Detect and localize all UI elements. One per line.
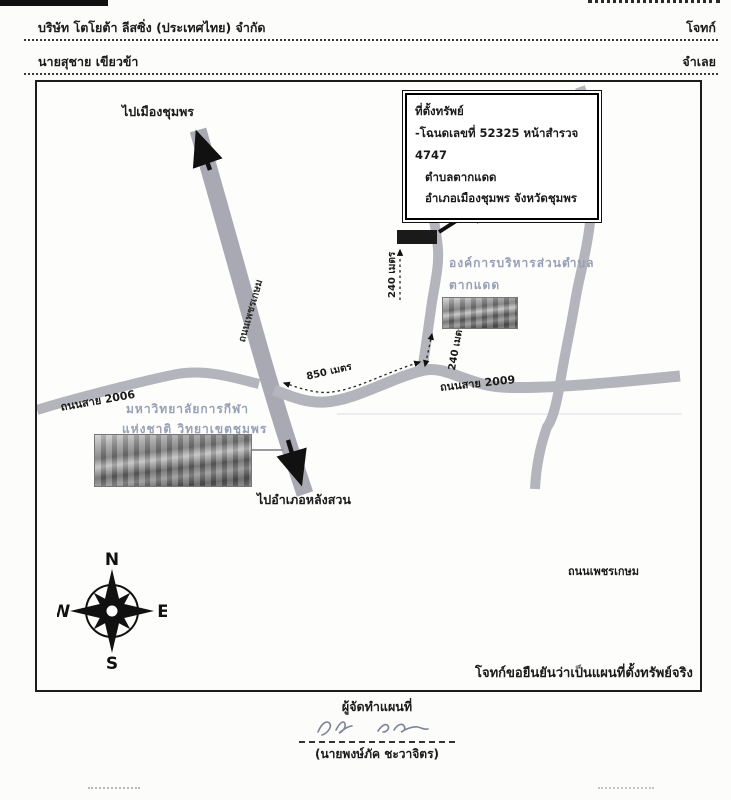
- compass-w: W: [57, 602, 71, 622]
- sao-office-photo: [442, 297, 518, 329]
- label-sao-line2: ตากแดด: [449, 276, 500, 295]
- plaintiff-role: โจทก์: [686, 18, 718, 38]
- plaintiff-line: บริษัท โตโยต้า ลีสซิ่ง (ประเทศไทย) จำกัด…: [24, 18, 718, 41]
- info-district-province: อำเภอเมืองชุมพร จังหวัดชุมพร: [415, 188, 589, 210]
- scan-artifact-bar: [0, 0, 108, 6]
- compass-rose: N S W E: [57, 550, 167, 670]
- compass-n: N: [105, 550, 119, 570]
- scan-artifact-dots-left: [88, 787, 140, 789]
- info-deed-line: -โฉนดเลขที่ 52325 หน้าสำรวจ 4747: [415, 123, 589, 167]
- scan-artifact-dots-right: [598, 787, 654, 789]
- defendant-role: จำเลย: [682, 52, 718, 72]
- preparer-name: (นายพงษ์ภัค ชะวาจิตร): [282, 745, 472, 764]
- label-phetkasem-text: ถนนเพชรเกษม: [568, 562, 639, 580]
- label-to-chumphon: ไปเมืองชุมพร: [122, 102, 194, 122]
- property-info-box: ที่ตั้งทรัพย์ -โฉนดเลขที่ 52325 หน้าสำรว…: [402, 90, 602, 223]
- label-university-line1: มหาวิทยาลัยการกีฬา: [126, 400, 249, 419]
- signature-line: [299, 741, 455, 743]
- confirmation-statement: โจทก์ขอยืนยันว่าเป็นแผนที่ตั้งทรัพย์จริง: [475, 662, 693, 683]
- label-to-langsuan: ไปอำเภอหลังสวน: [257, 490, 351, 510]
- label-distance-240-a: 240 เมตร: [385, 252, 400, 298]
- preparer-signature: [312, 714, 442, 744]
- label-sao-line1: องค์การบริหารส่วนตำบล: [449, 254, 594, 273]
- compass-s: S: [106, 654, 118, 670]
- property-marker: [397, 230, 437, 244]
- info-subdistrict: ตำบลตากแดด: [415, 167, 589, 189]
- defendant-line: นายสุชาย เขียวข้า จำเลย: [24, 52, 718, 75]
- scan-artifact-dashes: [588, 0, 720, 3]
- plaintiff-name: บริษัท โตโยต้า ลีสซิ่ง (ประเทศไทย) จำกัด: [24, 18, 266, 38]
- compass-e: E: [157, 602, 167, 622]
- defendant-name: นายสุชาย เขียวข้า: [24, 52, 138, 72]
- university-photo: [94, 434, 252, 487]
- info-title: ที่ตั้งทรัพย์: [415, 101, 589, 123]
- property-location-map: ที่ตั้งทรัพย์ -โฉนดเลขที่ 52325 หน้าสำรว…: [35, 80, 702, 692]
